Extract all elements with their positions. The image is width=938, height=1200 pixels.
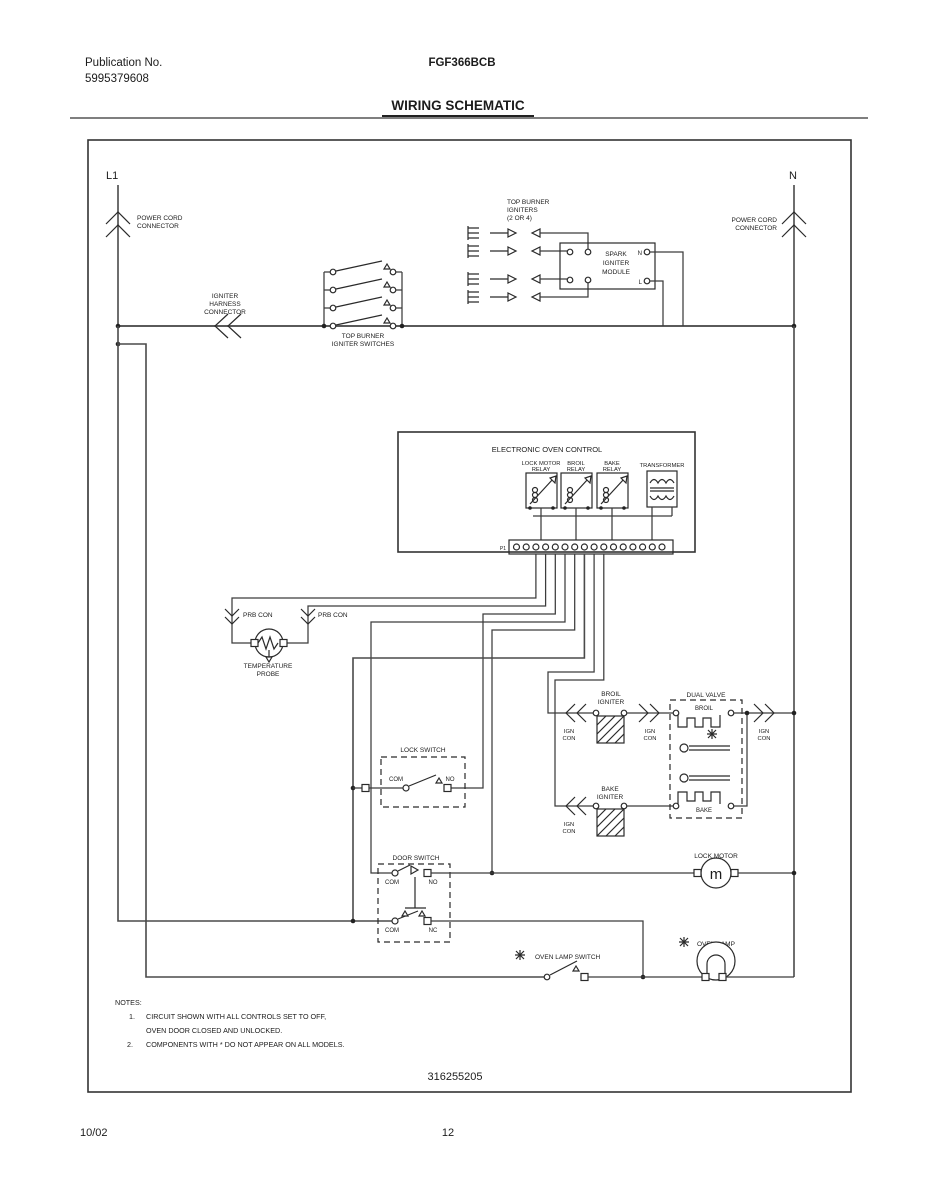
igniter-row-3 <box>468 272 567 286</box>
eoc-title: ELECTRONIC OVEN CONTROL <box>492 445 602 454</box>
wiring-schematic-svg: Publication No. 5995379608 FGF366BCB WIR… <box>0 0 938 1200</box>
ign-con-label-broil-right-2: CON <box>644 736 657 742</box>
module-l-wire <box>650 281 663 326</box>
note2-number: 2. <box>127 1040 133 1049</box>
bake-relay: BAKE RELAY <box>597 461 628 510</box>
transformer: TRANSFORMER <box>640 463 685 507</box>
asterisk-icon-oven-lamp <box>679 937 689 947</box>
model-number: FGF366BCB <box>428 57 495 69</box>
bake-igniter-label-2: IGNITER <box>597 794 624 801</box>
broil-igniter-label-1: BROIL <box>601 691 621 698</box>
publication-number: 5995379608 <box>85 73 149 85</box>
motor-m-glyph: m <box>710 866 723 883</box>
asterisk-icon-lamp-switch <box>515 950 525 960</box>
l1-label: L1 <box>106 170 118 182</box>
lock-motor: LOCK MOTOR m <box>694 853 796 888</box>
door-switch-no-label: NO <box>429 880 438 886</box>
power-cord-connector-label-left-1: POWER CORD <box>137 215 183 222</box>
diagram-part-number: 316255205 <box>427 1071 482 1083</box>
bake-igniter-label-1: BAKE <box>601 786 619 793</box>
note1-number: 1. <box>129 1012 135 1021</box>
top-burner-igniters-label-1: TOP BURNER <box>507 199 550 206</box>
valve-plunger-icons <box>680 744 730 782</box>
top-burner-igniters-label-3: (2 OR 4) <box>507 215 532 222</box>
igniter-row-1 <box>468 226 588 249</box>
note2-line1: COMPONENTS WITH * DO NOT APPEAR ON ALL M… <box>146 1040 345 1049</box>
document-page: Publication No. 5995379608 FGF366BCB WIR… <box>0 0 938 1200</box>
spark-igniter-module-label-1: SPARK <box>605 251 627 258</box>
lock-motor-relay-label-2: RELAY <box>532 467 551 473</box>
lock-motor-relay: LOCK MOTOR RELAY <box>522 461 561 510</box>
ign-con-label-broil-left-2: CON <box>563 736 576 742</box>
bake-igniter: BAKE IGNITER IGN CON <box>563 786 673 836</box>
prb-con-label-right: PRB CON <box>318 612 348 619</box>
ign-con-label-far-right-1: IGN <box>759 729 769 735</box>
bake-solenoid-icon <box>678 792 720 804</box>
oven-lamp-switch: OVEN LAMP SWITCH <box>515 950 702 981</box>
top-burner-igniter-switches-label-1: TOP BURNER <box>342 333 385 340</box>
lock-switch-com-label: COM <box>389 777 403 783</box>
broil-igniter-label-2: IGNITER <box>598 699 625 706</box>
igniter-harness-connector-label-1: IGNITER <box>212 293 239 300</box>
eoc-fanout-wires <box>232 554 604 923</box>
broil-igniter-icon <box>597 716 624 743</box>
broil-solenoid-icon <box>678 715 720 727</box>
electronic-oven-control: ELECTRONIC OVEN CONTROL LOCK MOTOR RELAY… <box>398 432 695 554</box>
temperature-probe-label-2: PROBE <box>257 671 280 678</box>
spark-igniter-module-label-2: IGNITER <box>603 260 630 267</box>
asterisk-icon-valve <box>707 729 717 739</box>
ign-con-label-broil-left-1: IGN <box>564 729 574 735</box>
note1-line2: OVEN DOOR CLOSED AND UNLOCKED. <box>146 1026 282 1035</box>
door-switch-title: DOOR SWITCH <box>393 855 440 862</box>
lock-switch-no-label: NO <box>446 777 455 783</box>
broil-relay-label-2: RELAY <box>567 467 586 473</box>
ign-con-label-bake-left-2: CON <box>563 829 576 835</box>
module-n-terminal-label: N <box>638 251 642 257</box>
power-cord-connector-label-right-1: POWER CORD <box>732 217 778 224</box>
page-title: WIRING SCHEMATIC <box>391 98 524 113</box>
lock-switch: LOCK SWITCH COM NO <box>353 747 465 807</box>
door-switch-com-lower-label: COM <box>385 928 399 934</box>
prb-con-label-left: PRB CON <box>243 612 273 619</box>
eoc-internal-wires <box>533 507 672 540</box>
top-burner-igniters-label-2: IGNITERS <box>507 207 538 214</box>
ign-con-label-broil-right-1: IGN <box>645 729 655 735</box>
igniter-row-2 <box>468 244 567 258</box>
n-label: N <box>789 170 797 182</box>
igniter-harness-connector-label-2: HARNESS <box>209 301 241 308</box>
top-burner-igniter-switches-label-2: IGNITER SWITCHES <box>332 341 395 348</box>
broil-relay: BROIL RELAY <box>561 461 592 510</box>
bake-igniter-icon <box>597 809 624 836</box>
power-cord-connector-label-right-2: CONNECTOR <box>735 225 777 232</box>
door-switch-com-upper-label: COM <box>385 880 399 886</box>
left-feeder-wires <box>116 324 797 977</box>
transformer-label: TRANSFORMER <box>640 463 685 469</box>
dual-valve: DUAL VALVE BROIL BAKE IGN CON <box>670 692 796 818</box>
ign-con-label-bake-left-1: IGN <box>564 822 574 828</box>
n-power-cord-connector: N POWER CORD CONNECTOR <box>732 170 807 326</box>
bake-return-wire <box>734 713 747 806</box>
top-burner-igniter-switches: TOP BURNER IGNITER SWITCHES <box>322 261 405 348</box>
door-switch-nc-label: NC <box>429 928 438 934</box>
page-footer: 10/02 12 <box>80 1127 454 1139</box>
spark-igniter-module-label-3: MODULE <box>602 269 630 276</box>
module-l-terminal-label: L <box>639 280 643 286</box>
oven-lamp: OVEN LAMP <box>679 937 794 981</box>
footer-date: 10/02 <box>80 1127 108 1139</box>
door-switch: DOOR SWITCH COM NO COM NC <box>378 855 450 942</box>
footer-page-number: 12 <box>442 1127 454 1139</box>
door-nc-to-lamp-wire <box>431 921 643 977</box>
dual-valve-broil-label: BROIL <box>695 706 714 712</box>
page-header: Publication No. 5995379608 FGF366BCB WIR… <box>70 57 868 118</box>
l1-power-cord-connector: L1 POWER CORD CONNECTOR <box>106 170 183 326</box>
dual-valve-bake-label: BAKE <box>696 808 712 814</box>
igniter-row-4 <box>468 283 588 304</box>
note1-line1: CIRCUIT SHOWN WITH ALL CONTROLS SET TO O… <box>146 1012 326 1021</box>
dual-valve-title: DUAL VALVE <box>687 692 727 699</box>
notes-block: NOTES: 1. CIRCUIT SHOWN WITH ALL CONTROL… <box>115 998 345 1049</box>
spark-igniter-module: SPARK IGNITER MODULE N L <box>560 243 683 326</box>
power-cord-connector-label-left-2: CONNECTOR <box>137 223 179 230</box>
broil-igniter: BROIL IGNITER IGN CON IGN CON <box>563 691 673 743</box>
lock-switch-title: LOCK SWITCH <box>400 747 445 754</box>
ign-con-label-far-right-2: CON <box>758 736 771 742</box>
notes-heading: NOTES: <box>115 998 142 1007</box>
publication-label: Publication No. <box>85 57 162 69</box>
temperature-probe-label-1: TEMPERATURE <box>244 663 293 670</box>
schematic-border <box>88 140 851 1092</box>
bake-relay-label-2: RELAY <box>603 467 622 473</box>
oven-lamp-switch-label: OVEN LAMP SWITCH <box>535 954 601 961</box>
igniter-harness-connector: IGNITER HARNESS CONNECTOR <box>204 293 246 338</box>
connector-strip-label: P1 <box>500 546 506 552</box>
